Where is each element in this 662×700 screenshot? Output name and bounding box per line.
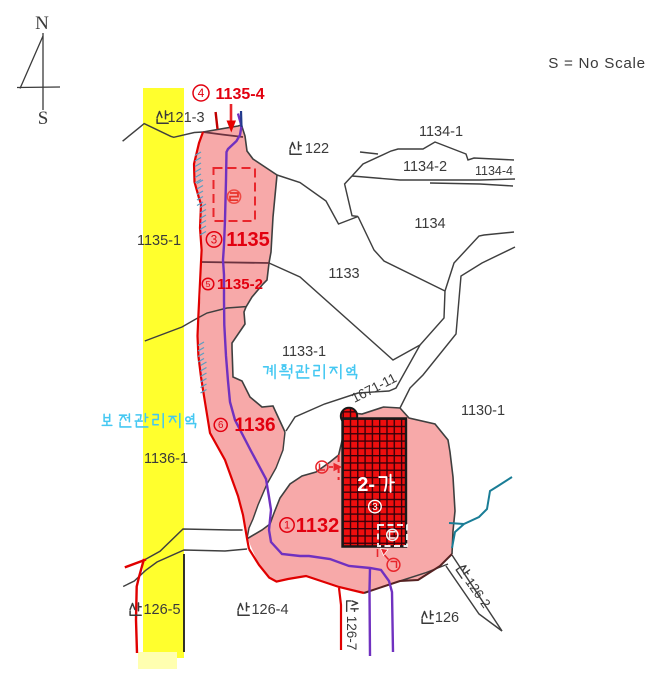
svg-text:3: 3 [372, 502, 378, 513]
svg-text:1134: 1134 [414, 216, 445, 232]
svg-text:6: 6 [218, 420, 223, 431]
svg-text:126: 126 [435, 610, 459, 626]
svg-text:1130-1: 1130-1 [461, 403, 505, 419]
svg-text:1135-4: 1135-4 [216, 86, 265, 103]
svg-text:126-5: 126-5 [143, 602, 180, 618]
svg-text:1134-1: 1134-1 [419, 124, 463, 140]
svg-text:126-7: 126-7 [344, 616, 359, 651]
svg-text:1135-2: 1135-2 [217, 276, 263, 293]
svg-text:1132: 1132 [296, 515, 339, 537]
svg-text:1136-1: 1136-1 [144, 451, 188, 467]
svg-text:N: N [35, 13, 49, 34]
svg-text:S = No Scale: S = No Scale [548, 55, 645, 72]
svg-text:2-: 2- [357, 474, 375, 496]
svg-text:1133: 1133 [328, 266, 359, 282]
svg-text:1135-1: 1135-1 [137, 233, 181, 249]
svg-text:122: 122 [305, 141, 329, 157]
svg-text:1136: 1136 [234, 415, 275, 436]
svg-text:126-4: 126-4 [251, 602, 288, 618]
svg-text:4: 4 [198, 86, 205, 100]
svg-text:1134-2: 1134-2 [403, 159, 447, 175]
svg-text:1135: 1135 [226, 229, 269, 251]
svg-text:5: 5 [206, 279, 211, 289]
svg-text:S: S [38, 108, 49, 129]
svg-text:3: 3 [211, 234, 217, 246]
svg-text:1: 1 [284, 520, 290, 532]
svg-text:1133-1: 1133-1 [282, 344, 326, 360]
svg-text:121-3: 121-3 [167, 110, 204, 126]
svg-text:1134-4: 1134-4 [475, 164, 513, 178]
